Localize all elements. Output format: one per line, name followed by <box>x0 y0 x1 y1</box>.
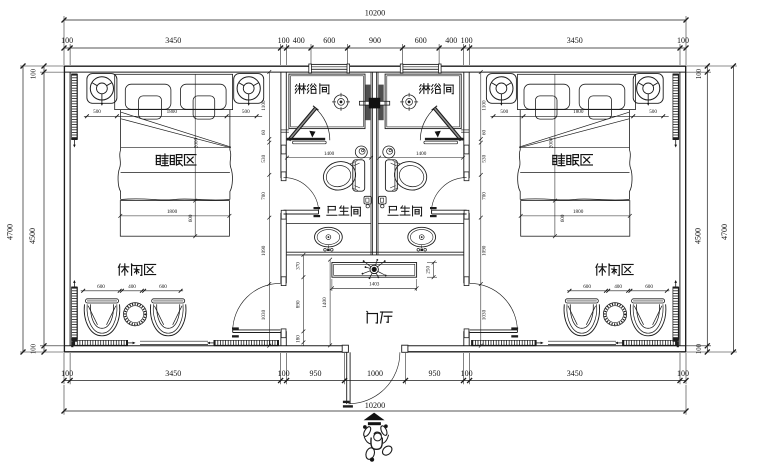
svg-text:180: 180 <box>295 335 301 343</box>
svg-text:1090: 1090 <box>261 245 267 256</box>
svg-text:10200: 10200 <box>365 401 385 410</box>
svg-text:400: 400 <box>128 284 136 290</box>
svg-text:500: 500 <box>242 109 250 115</box>
svg-text:100: 100 <box>278 36 290 45</box>
svg-text:600: 600 <box>323 36 335 45</box>
svg-text:1403: 1403 <box>369 282 380 288</box>
svg-text:1030: 1030 <box>481 309 487 320</box>
svg-text:100: 100 <box>677 369 689 378</box>
svg-text:100: 100 <box>278 369 290 378</box>
svg-text:1000: 1000 <box>367 369 383 378</box>
svg-text:4500: 4500 <box>28 228 37 244</box>
svg-text:2000: 2000 <box>549 137 555 148</box>
svg-text:370: 370 <box>295 262 301 270</box>
svg-text:530: 530 <box>481 154 487 162</box>
svg-text:600: 600 <box>97 284 105 290</box>
svg-text:2000: 2000 <box>194 137 200 148</box>
svg-text:100: 100 <box>696 343 703 354</box>
svg-text:600: 600 <box>188 214 194 222</box>
svg-text:100: 100 <box>61 369 73 378</box>
svg-text:1400: 1400 <box>322 297 328 308</box>
svg-text:60: 60 <box>261 130 267 136</box>
svg-text:600: 600 <box>583 284 591 290</box>
svg-text:100: 100 <box>696 68 703 79</box>
svg-text:400: 400 <box>614 284 622 290</box>
svg-text:600: 600 <box>560 214 566 222</box>
svg-text:400: 400 <box>445 36 457 45</box>
svg-text:500: 500 <box>649 109 657 115</box>
svg-text:4700: 4700 <box>6 224 15 240</box>
svg-text:1100: 1100 <box>261 100 267 111</box>
svg-text:400: 400 <box>293 36 305 45</box>
svg-text:1800: 1800 <box>573 109 584 115</box>
svg-text:100: 100 <box>461 369 473 378</box>
svg-text:900: 900 <box>369 36 381 45</box>
svg-text:100: 100 <box>31 68 38 79</box>
svg-text:950: 950 <box>310 369 322 378</box>
svg-text:3450: 3450 <box>567 36 583 45</box>
svg-text:700: 700 <box>261 192 267 200</box>
svg-text:1800: 1800 <box>573 209 584 215</box>
svg-text:3450: 3450 <box>567 369 583 378</box>
svg-text:1400: 1400 <box>324 151 335 157</box>
svg-text:1800: 1800 <box>167 109 178 115</box>
svg-text:600: 600 <box>159 284 167 290</box>
svg-text:500: 500 <box>93 109 101 115</box>
svg-text:100: 100 <box>31 343 38 354</box>
svg-text:3450: 3450 <box>165 369 181 378</box>
svg-text:1090: 1090 <box>481 245 487 256</box>
svg-text:1100: 1100 <box>481 100 487 111</box>
svg-text:1030: 1030 <box>261 309 267 320</box>
svg-text:1400: 1400 <box>416 151 427 157</box>
svg-text:530: 530 <box>261 154 267 162</box>
svg-text:3450: 3450 <box>165 36 181 45</box>
svg-text:600: 600 <box>415 36 427 45</box>
svg-text:100: 100 <box>61 36 73 45</box>
svg-text:100: 100 <box>677 36 689 45</box>
svg-text:600: 600 <box>645 284 653 290</box>
svg-text:100: 100 <box>461 36 473 45</box>
svg-text:1800: 1800 <box>167 209 178 215</box>
svg-text:500: 500 <box>500 109 508 115</box>
svg-text:60: 60 <box>481 130 487 136</box>
svg-text:4700: 4700 <box>720 224 729 240</box>
svg-text:250: 250 <box>426 266 432 274</box>
svg-text:10200: 10200 <box>365 9 385 18</box>
svg-text:4500: 4500 <box>694 228 703 244</box>
svg-text:950: 950 <box>429 369 441 378</box>
svg-text:700: 700 <box>481 192 487 200</box>
svg-text:890: 890 <box>295 300 301 308</box>
